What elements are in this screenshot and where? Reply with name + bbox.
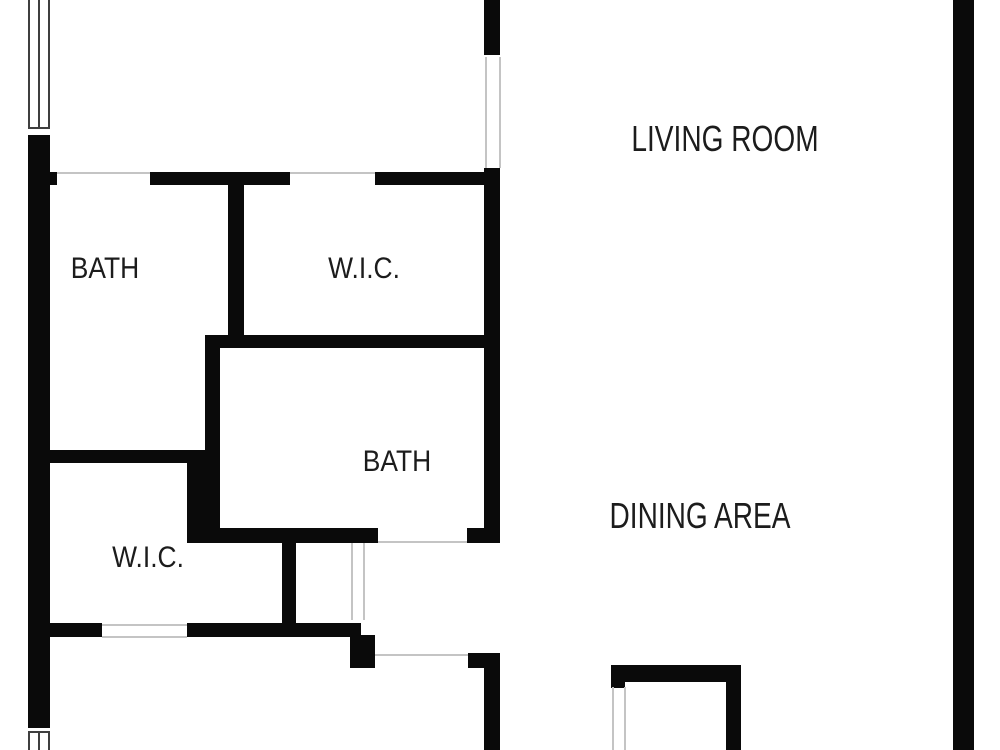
door-opening-line [290, 172, 375, 174]
wall-segment [484, 168, 500, 543]
window-top-left-line [48, 0, 50, 128]
room-label-bath-2: BATH [358, 447, 436, 477]
wall-segment [467, 528, 484, 543]
floor-plan: LIVING ROOM DINING AREA BATH W.I.C. BATH… [0, 0, 1000, 750]
wall-segment [50, 172, 57, 185]
wall-segment [205, 335, 487, 348]
wall-segment [49, 450, 207, 463]
wall-segment [726, 682, 741, 750]
window-top-left-line [28, 0, 30, 128]
wall-segment [484, 0, 500, 55]
room-label-text: DINING AREA [609, 498, 790, 534]
door-opening-line [102, 636, 187, 638]
room-label-wic-1: W.I.C. [323, 254, 405, 284]
room-label-living-room: LIVING ROOM [605, 121, 845, 157]
door-opening-line [57, 172, 150, 174]
wall-segment [282, 543, 296, 632]
room-label-text: BATH [71, 254, 139, 284]
wall-segment [375, 172, 497, 185]
door-opening-line [499, 57, 501, 168]
door-opening-line [378, 541, 467, 543]
window-bottom-left-line [48, 733, 50, 750]
door-opening-line [624, 687, 626, 750]
door-opening-line [363, 543, 365, 620]
wall-segment [953, 0, 974, 750]
window-bottom-left-line [28, 733, 30, 750]
door-opening-line [612, 687, 614, 750]
wall-segment [611, 665, 741, 682]
room-label-text: LIVING ROOM [631, 121, 818, 157]
window-top-left-line [38, 0, 40, 128]
wall-segment [28, 135, 50, 728]
room-label-wic-2: W.I.C. [107, 543, 189, 573]
wall-segment [468, 653, 484, 668]
wall-segment [220, 528, 378, 543]
wall-segment [49, 623, 102, 637]
window-top-left-line [28, 127, 50, 129]
room-label-bath-1: BATH [66, 254, 144, 284]
wall-segment [484, 653, 500, 750]
wall-segment [228, 185, 244, 337]
room-label-text: W.I.C. [112, 543, 184, 573]
room-label-dining-area: DINING AREA [584, 498, 816, 534]
window-bottom-left-line [38, 733, 40, 750]
wall-segment [187, 460, 220, 543]
door-opening-line [102, 624, 187, 626]
door-opening-line [351, 543, 353, 620]
room-label-text: W.I.C. [328, 254, 400, 284]
door-opening-line [375, 654, 468, 656]
wall-segment [187, 623, 361, 637]
wall-segment [350, 635, 375, 668]
wall-segment [150, 172, 290, 185]
door-opening-line [485, 57, 487, 168]
wall-segment [205, 348, 220, 463]
room-label-text: BATH [363, 447, 431, 477]
